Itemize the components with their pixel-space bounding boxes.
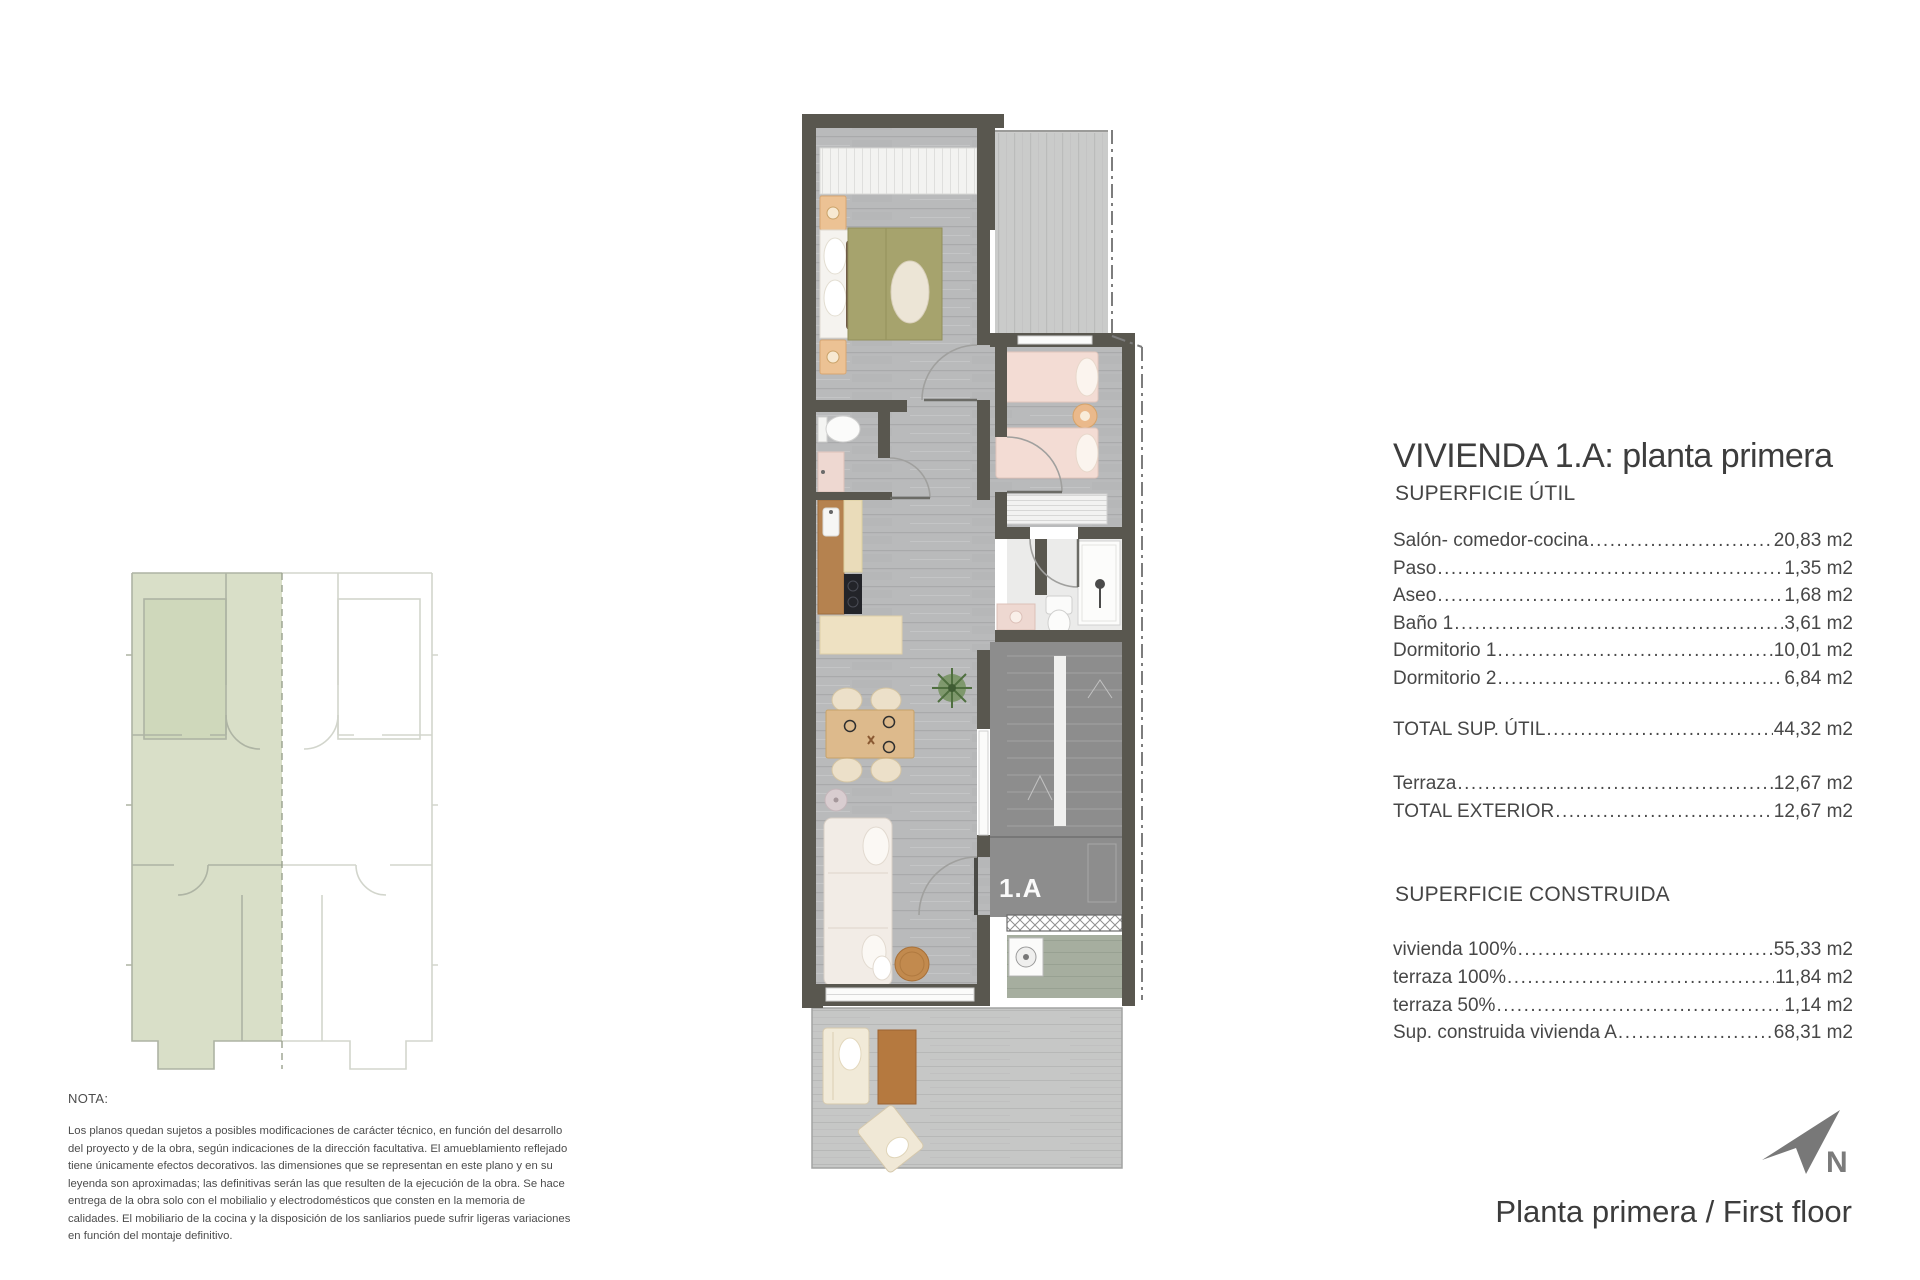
page-title: VIVIENDA 1.A: planta primera bbox=[1393, 437, 1853, 476]
area-row: vivienda 100% 55,33 m2 bbox=[1393, 939, 1853, 967]
area-row: Sup. construida vivienda A68,31 m2 bbox=[1393, 1022, 1853, 1050]
plant bbox=[932, 668, 972, 708]
superficie-util-heading: SUPERFICIE ÚTIL bbox=[1395, 482, 1853, 506]
area-row: Dormitorio 110,01 m2 bbox=[1393, 640, 1853, 668]
cooktop bbox=[844, 574, 862, 614]
area-row: Baño 13,61 m2 bbox=[1393, 613, 1853, 641]
north-label: N bbox=[1826, 1146, 1848, 1180]
wardrobe bbox=[820, 148, 977, 194]
nota-body: Los planos quedan sujetos a posibles mod… bbox=[68, 1123, 578, 1246]
unit-label: 1.A bbox=[999, 873, 1042, 903]
wall-hatch-band bbox=[1007, 915, 1122, 931]
area-row: Aseo1,68 m2 bbox=[1393, 585, 1853, 613]
terrace-top bbox=[995, 133, 1108, 333]
superficie-construida-list: vivienda 100% 55,33 m2 terraza 100%11,84… bbox=[1393, 939, 1853, 1049]
area-row: Dormitorio 26,84 m2 bbox=[1393, 668, 1853, 696]
floor-plan: 1.A bbox=[790, 100, 1162, 1192]
nota-block: NOTA: Los planos quedan sujetos a posibl… bbox=[68, 1091, 578, 1246]
total-util-row: TOTAL SUP. ÚTIL44,32 m2 bbox=[1393, 719, 1853, 747]
superficie-util-list: Salón- comedor-cocina20,83 m2 Paso1,35 m… bbox=[1393, 530, 1853, 696]
nota-heading: NOTA: bbox=[68, 1091, 578, 1106]
toilet bbox=[826, 416, 860, 442]
floor-caption: Planta primera / First floor bbox=[1400, 1194, 1852, 1230]
superficie-construida-heading: SUPERFICIE CONSTRUIDA bbox=[1395, 883, 1853, 907]
area-row: terraza 100%11,84 m2 bbox=[1393, 967, 1853, 995]
area-row: TOTAL EXTERIOR12,67 m2 bbox=[1393, 801, 1853, 829]
area-row: Paso1,35 m2 bbox=[1393, 558, 1853, 586]
dining-table bbox=[826, 710, 914, 758]
key-plan bbox=[122, 565, 442, 1095]
area-row: Terraza12,67 m2 bbox=[1393, 773, 1853, 801]
double-bed bbox=[820, 228, 942, 340]
outdoor-table bbox=[878, 1030, 916, 1104]
kitchen-island bbox=[820, 616, 902, 654]
area-row: terraza 50%1,14 m2 bbox=[1393, 995, 1853, 1023]
washing-machine bbox=[1009, 938, 1043, 976]
area-info-panel: VIVIENDA 1.A: planta primera SUPERFICIE … bbox=[1393, 437, 1853, 1050]
area-row: Salón- comedor-cocina20,83 m2 bbox=[1393, 530, 1853, 558]
sofa bbox=[824, 818, 892, 986]
terrace-edge bbox=[995, 130, 1108, 133]
key-plan-room bbox=[144, 599, 226, 739]
coffee-table bbox=[895, 947, 929, 981]
exterior-list: Terraza12,67 m2 TOTAL EXTERIOR12,67 m2 bbox=[1393, 773, 1853, 828]
wardrobe bbox=[1003, 494, 1107, 524]
